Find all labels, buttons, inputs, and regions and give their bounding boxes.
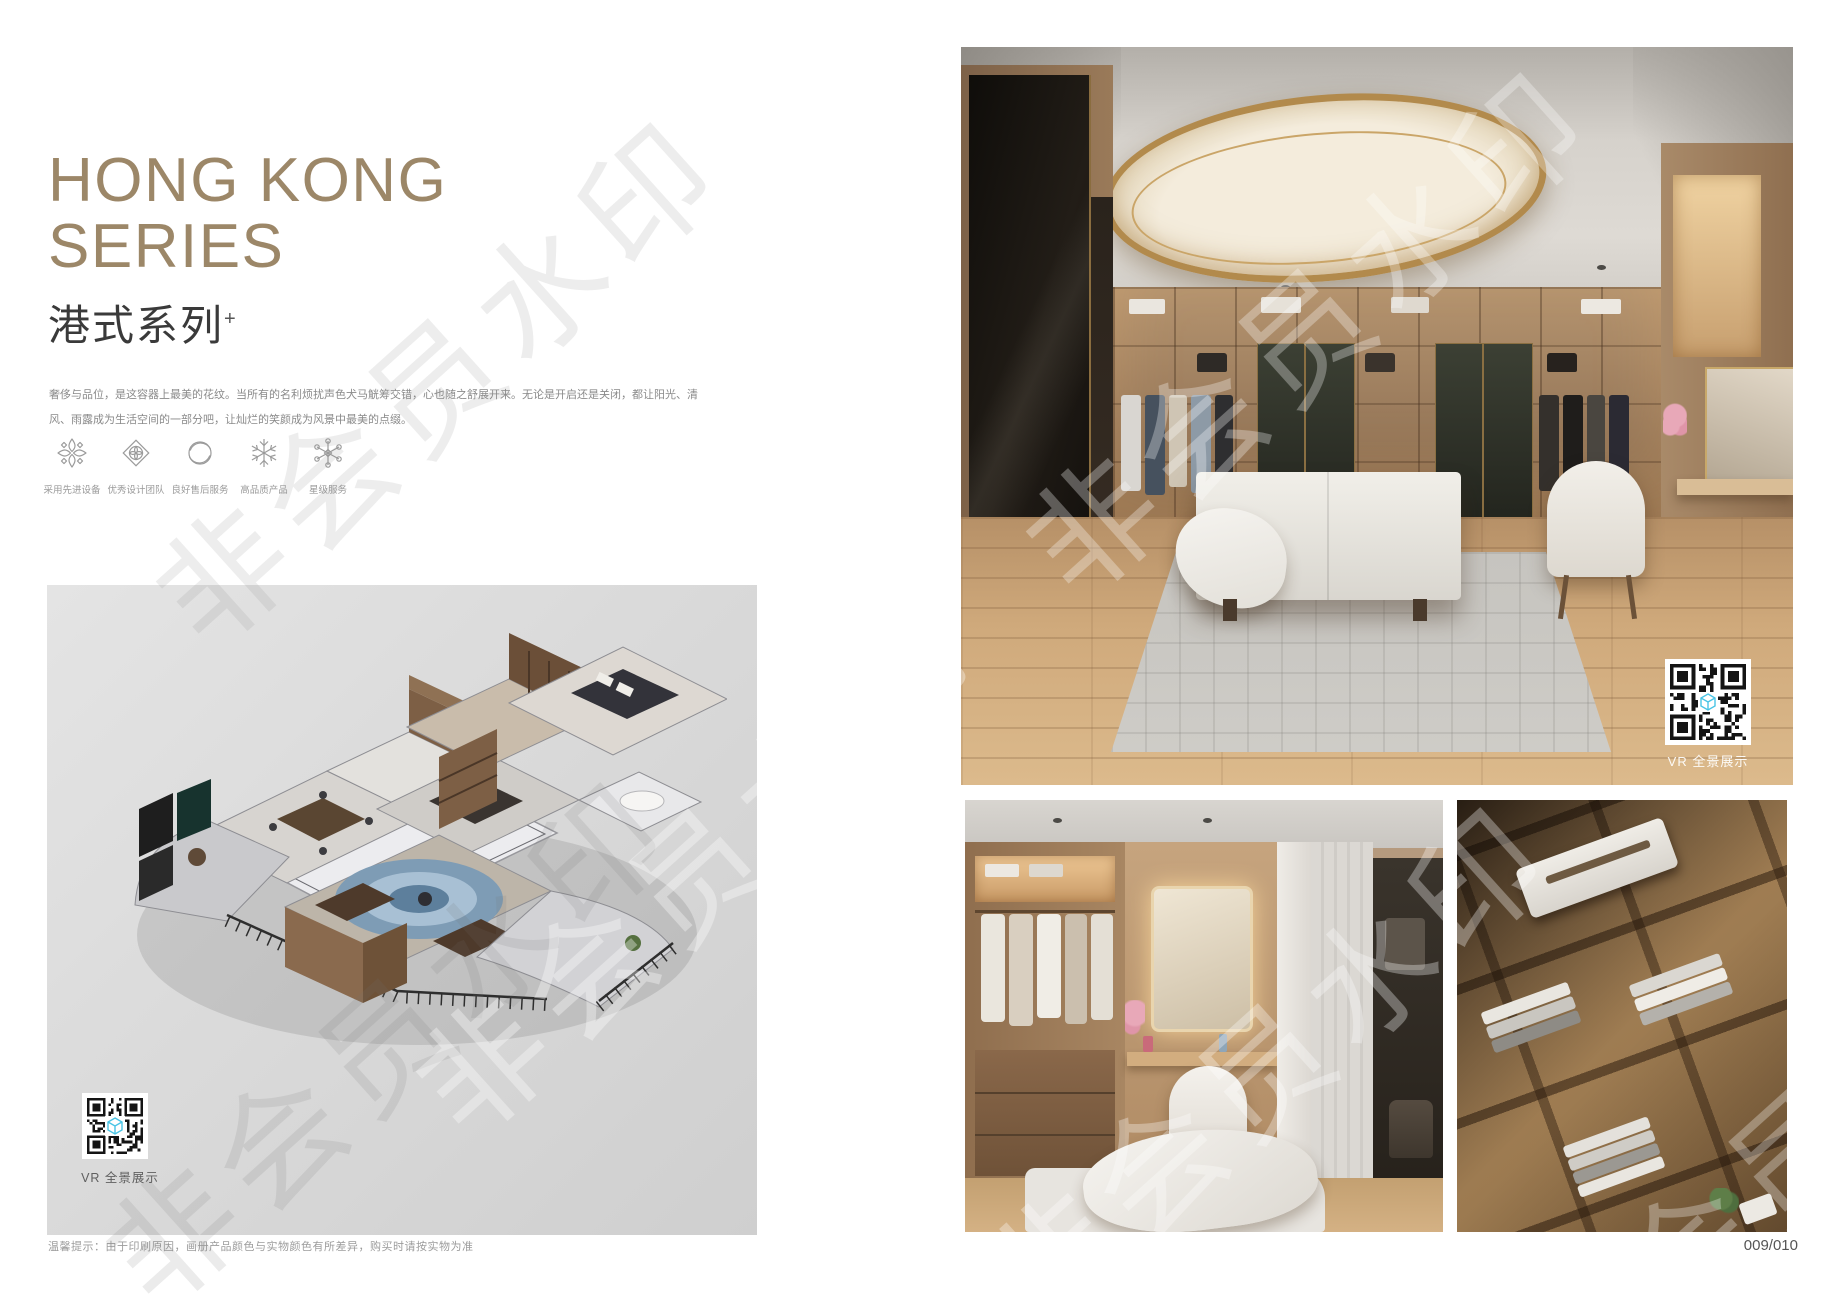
series-title-line1: HONG KONG (48, 148, 447, 214)
hanging-garment (1091, 914, 1113, 1020)
vanity-desk-top (1127, 1052, 1277, 1066)
vr-qr-code (1665, 659, 1751, 745)
vr-panorama-label: VR 全景展示 (75, 1167, 165, 1186)
catalog-page: HONG KONG SERIES 港式系列+ 奢侈与品位，是这容器上最美的花纹。… (0, 0, 1836, 1307)
mattress-seam (1327, 472, 1329, 600)
hanging-rod (975, 910, 1115, 913)
shelf-item (1129, 299, 1165, 314)
dark-doorway (1373, 858, 1443, 1232)
perfume-bottle (1219, 1034, 1227, 1052)
vr-cube-logo-icon (1698, 692, 1718, 712)
handbag (1365, 353, 1395, 372)
small-plant (1709, 1188, 1739, 1214)
vanity-mirror (1705, 367, 1793, 483)
feature-item: 采用先进设备 (40, 436, 104, 496)
hanging-garment (1009, 914, 1033, 1026)
drawer-seam (975, 1092, 1115, 1094)
ceiling-spotlight (1597, 265, 1606, 270)
ornament-flower-icon (55, 436, 89, 470)
series-description: 奢侈与品位，是这容器上最美的花纹。当所有的名利烦扰声色犬马觥筹交错，心也随之舒展… (49, 383, 698, 433)
hanging-garment (1145, 395, 1165, 495)
main-photo-walkin-closet: VR 全景展示 (961, 47, 1793, 785)
wall-art-frame (1385, 918, 1425, 970)
hanging-garment (1065, 914, 1087, 1024)
feature-label: 良好售后服务 (171, 482, 228, 496)
vr-cube-logo-icon (105, 1116, 125, 1136)
feature-label: 优秀设计团队 (107, 482, 164, 496)
series-title-cn: 港式系列+ (48, 292, 238, 353)
feature-item: 良好售后服务 (168, 436, 232, 496)
feature-item: 星级服务 (296, 436, 360, 496)
cabinet-door-seam (1482, 343, 1484, 519)
ceiling (965, 800, 1443, 848)
feature-item: 高品质产品 (232, 436, 296, 496)
bench-leg (1223, 599, 1237, 621)
vr-panorama-label: VR 全景展示 (1657, 751, 1759, 770)
hanging-garment (1037, 914, 1061, 1018)
feature-label: 星级服务 (309, 482, 347, 496)
ornament-diamond-icon (119, 436, 153, 470)
feature-item: 优秀设计团队 (104, 436, 168, 496)
vanity-desk-top (1677, 479, 1793, 495)
detail-photo-dressing-table (965, 800, 1443, 1232)
shelf-item (985, 864, 1019, 877)
shelf-item (1391, 297, 1429, 313)
hanging-garment (1539, 395, 1559, 491)
lit-top-shelf (975, 856, 1115, 902)
hanging-garment (1121, 395, 1141, 491)
series-title-cn-text: 港式系列 (48, 302, 224, 349)
striped-wall (1311, 842, 1373, 1178)
drawer-stack (975, 1050, 1115, 1176)
shelf-item (1029, 864, 1063, 877)
vanity-chair (1547, 461, 1645, 577)
series-title-en: HONG KONG SERIES (48, 148, 447, 280)
ceiling-spotlight (1053, 818, 1062, 823)
feature-label: 采用先进设备 (43, 482, 100, 496)
description-line: 奢侈与品位，是这容器上最美的花纹。当所有的名利烦扰声色犬马觥筹交错，心也随之舒展… (49, 383, 698, 408)
series-title-superscript: + (224, 308, 238, 330)
floorplan-panel: VR 全景展示 (47, 585, 757, 1235)
flower-vase (1125, 1000, 1145, 1052)
isometric-floorplan-render (77, 605, 727, 1105)
ornate-snowflake-icon (311, 436, 345, 470)
detail-photo-shelf-closeup (1457, 800, 1787, 1232)
page-number: 009/010 (1744, 1237, 1798, 1254)
vr-qr-code (82, 1093, 148, 1159)
ring-icon (183, 436, 217, 470)
shelf-item (1261, 297, 1301, 313)
barrel-cabinet (1389, 1100, 1433, 1158)
drawer-seam (975, 1134, 1115, 1136)
feature-label: 高品质产品 (240, 482, 288, 496)
feature-list: 采用先进设备 优秀设计团队 良好售后服务 (40, 436, 360, 496)
bench-leg (1413, 599, 1427, 621)
series-title-line2: SERIES (48, 214, 447, 280)
hanging-garment (1169, 395, 1187, 487)
handbag (1547, 353, 1577, 372)
description-line: 风、雨露成为生活空间的一部分吧，让灿烂的笑颜成为风景中最美的点缀。 (49, 408, 698, 433)
flower-vase (1663, 403, 1687, 445)
lighted-alcove (1673, 175, 1761, 357)
footer-disclaimer: 温馨提示：由于印刷原因，画册产品颜色与实物颜色有所差异，购买时请按实物为准 (48, 1238, 474, 1254)
shelf-item (1581, 299, 1621, 314)
handbag (1197, 353, 1227, 372)
backlit-mirror (1151, 886, 1253, 1032)
ceiling-spotlight (1203, 818, 1212, 823)
snowflake-icon (247, 436, 281, 470)
hanging-garment (981, 914, 1005, 1022)
